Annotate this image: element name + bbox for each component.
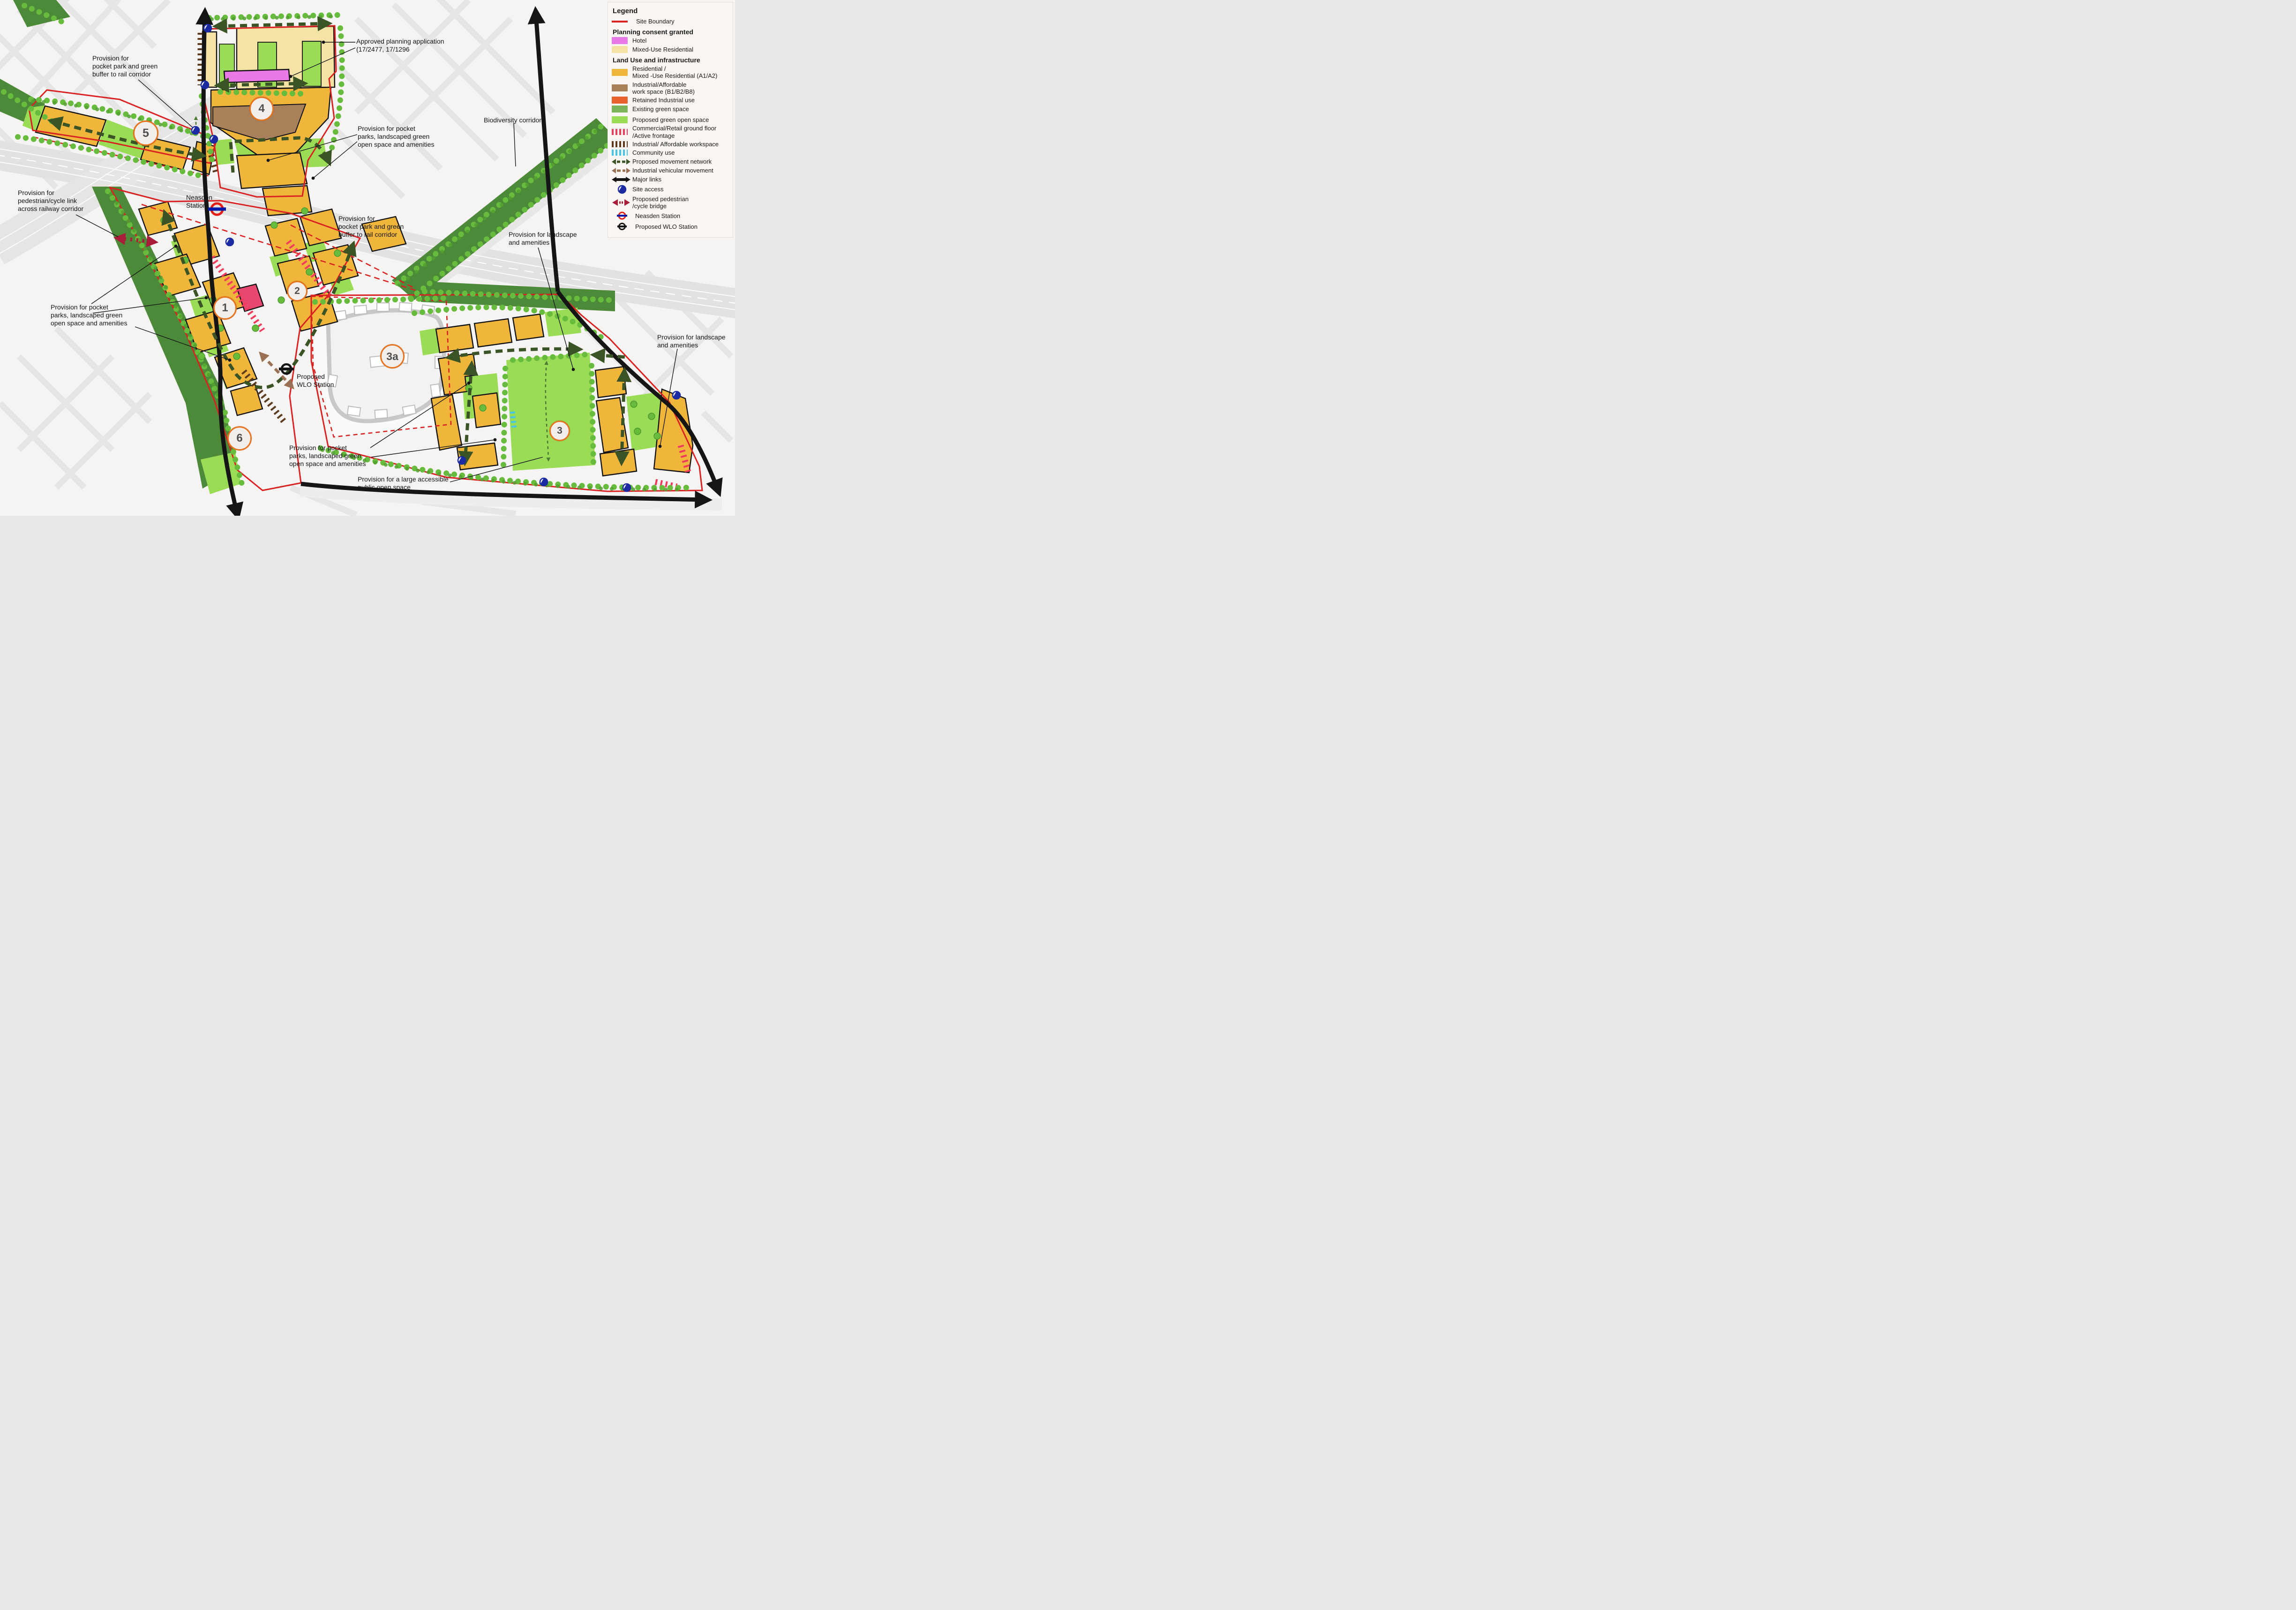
- residential-swatch-icon: [612, 69, 632, 76]
- site-access-icon: [612, 185, 632, 194]
- legend-row-proposed-green: Proposed green open space: [612, 116, 729, 123]
- legend-panel: Legend Site Boundary Planning consent gr…: [608, 2, 733, 238]
- legend-section-consent: Planning consent granted: [613, 28, 729, 36]
- legend-row-industrial-frontage: Industrial/ Affordable workspace: [612, 141, 729, 148]
- annotation-pocket-parks-bottom: Provision for pocket parks, landscaped g…: [289, 444, 376, 468]
- retained-industrial-swatch-icon: [612, 97, 632, 104]
- annotation-pocket-park-buffer-mid: Provision for pocket park and green buff…: [338, 215, 413, 239]
- site-boundary-line-icon: [612, 21, 632, 23]
- legend-row-major-links: Major links: [612, 176, 729, 183]
- area-badge-2: 2: [287, 281, 308, 301]
- legend-row-community-use: Community use: [612, 149, 729, 156]
- mixed-use-swatch-icon: [612, 46, 632, 53]
- legend-row-mixed-use: Mixed-Use Residential: [612, 46, 729, 53]
- legend-row-retained: Retained Industrial use: [612, 97, 729, 104]
- legend-row-site-access: Site access: [612, 185, 729, 194]
- legend-row-industrial: Industrial/Affordable work space (B1/B2/…: [612, 81, 729, 96]
- area-badge-5: 5: [133, 120, 158, 146]
- legend-row-neasden-station: Neasden Station: [612, 211, 729, 220]
- area-badge-3: 3: [549, 421, 570, 441]
- annotation-neasden-station: Neasden Station: [186, 194, 228, 210]
- industrial-swatch-icon: [612, 84, 632, 91]
- industrial-movement-arrow-icon: [612, 167, 632, 174]
- legend-row-ped-bridge: Proposed pedestrian /cycle bridge: [612, 196, 729, 210]
- legend-row-movement-network: Proposed movement network: [612, 158, 729, 166]
- legend-row-residential: Residential / Mixed -Use Residential (A1…: [612, 65, 729, 80]
- annotation-landscape-amenities-right: Provision for landscape and amenities: [657, 333, 732, 349]
- wlo-roundel-icon: [612, 222, 632, 231]
- annotation-pocket-parks-top: Provision for pocket parks, landscaped g…: [358, 125, 447, 149]
- masterplan-canvas: Provision for pocket park and green buff…: [0, 0, 735, 516]
- legend-row-wlo-station: Proposed WLO Station: [612, 222, 729, 231]
- legend-row-industrial-movement: Industrial vehicular movement: [612, 167, 729, 174]
- area-badge-6: 6: [227, 426, 252, 451]
- annotation-approved-planning: Approved planning application (17/2477, …: [356, 38, 459, 53]
- community-use-ticks-icon: [612, 150, 632, 156]
- neasden-roundel-icon: [612, 211, 632, 220]
- area-badge-1: 1: [213, 296, 237, 320]
- annotation-biodiversity-corridor: Biodiversity corridor: [484, 116, 559, 124]
- commercial-frontage-ticks-icon: [612, 129, 632, 135]
- legend-title: Legend: [613, 7, 729, 15]
- existing-green-swatch-icon: [612, 105, 632, 113]
- legend-row-existing-green: Existing green space: [612, 105, 729, 113]
- pedestrian-bridge-arrow-icon: [612, 198, 632, 207]
- legend-row-commercial-frontage: Commercial/Retail ground floor /Active f…: [612, 125, 729, 139]
- annotation-pocket-parks-left: Provision for pocket parks, landscaped g…: [51, 303, 140, 327]
- annotation-ped-cycle-link: Provision for pedestrian/cycle link acro…: [18, 189, 93, 213]
- legend-row-site-boundary: Site Boundary: [612, 18, 729, 25]
- legend-section-landuse: Land Use and infrastructure: [613, 56, 729, 64]
- hotel-swatch-icon: [612, 37, 632, 44]
- area-badge-4: 4: [249, 97, 274, 121]
- annotation-wlo-station: Proposed WLO Station: [297, 373, 348, 389]
- annotation-pocket-park-buffer-nw: Provision for pocket park and green buff…: [92, 54, 172, 78]
- movement-network-arrow-icon: [612, 158, 632, 166]
- proposed-green-swatch-icon: [612, 116, 632, 123]
- major-links-arrow-icon: [612, 176, 632, 183]
- industrial-frontage-ticks-icon: [612, 141, 632, 147]
- area-badge-3a: 3a: [380, 344, 405, 369]
- consented-blocks: [203, 26, 335, 89]
- annotation-landscape-amenities-mid: Provision for landscape and amenities: [509, 231, 588, 247]
- legend-row-hotel: Hotel: [612, 37, 729, 44]
- annotation-large-open-space: Provision for a large accessible public …: [358, 475, 461, 491]
